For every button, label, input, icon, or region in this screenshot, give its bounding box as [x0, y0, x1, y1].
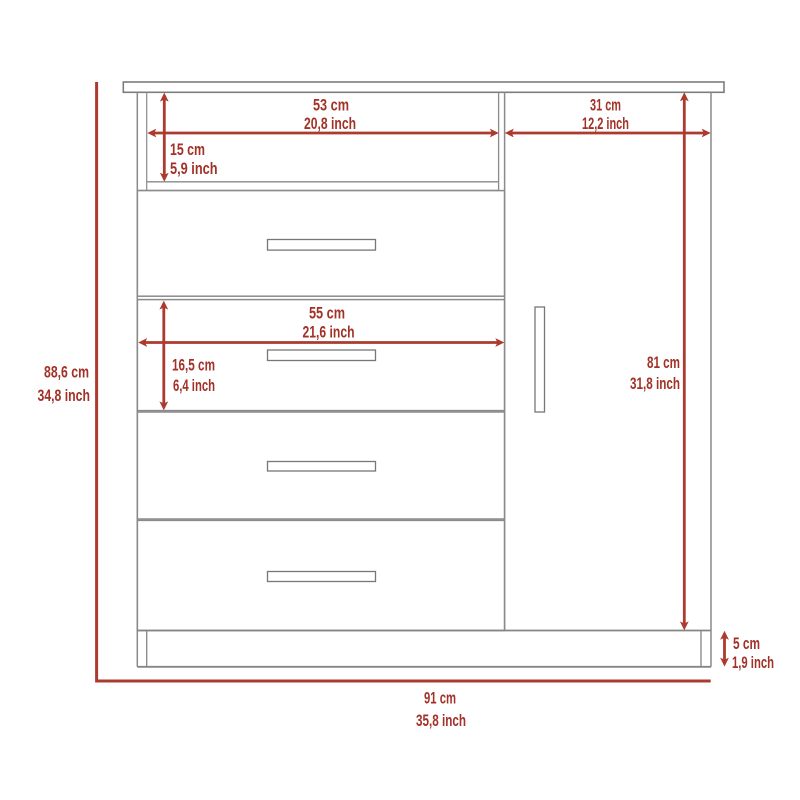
svg-text:21,6 inch: 21,6 inch: [303, 323, 355, 342]
svg-text:31 cm: 31 cm: [590, 95, 621, 114]
svg-text:53 cm: 53 cm: [313, 95, 349, 114]
svg-text:31,8 inch: 31,8 inch: [630, 374, 680, 393]
svg-text:91 cm: 91 cm: [424, 689, 456, 708]
svg-text:34,8 inch: 34,8 inch: [38, 386, 91, 405]
svg-text:20,8 inch: 20,8 inch: [304, 114, 356, 133]
svg-text:35,8 inch: 35,8 inch: [416, 711, 466, 730]
svg-text:1,9 inch: 1,9 inch: [732, 653, 774, 672]
svg-text:5 cm: 5 cm: [733, 634, 760, 653]
svg-text:16,5 cm: 16,5 cm: [172, 356, 215, 375]
svg-text:81 cm: 81 cm: [647, 353, 680, 372]
svg-text:88,6 cm: 88,6 cm: [44, 363, 89, 382]
svg-text:6,4 inch: 6,4 inch: [173, 376, 215, 395]
svg-text:15 cm: 15 cm: [170, 140, 205, 159]
svg-text:5,9 inch: 5,9 inch: [170, 159, 218, 178]
svg-text:12,2 inch: 12,2 inch: [582, 114, 629, 133]
svg-text:55 cm: 55 cm: [309, 304, 345, 323]
